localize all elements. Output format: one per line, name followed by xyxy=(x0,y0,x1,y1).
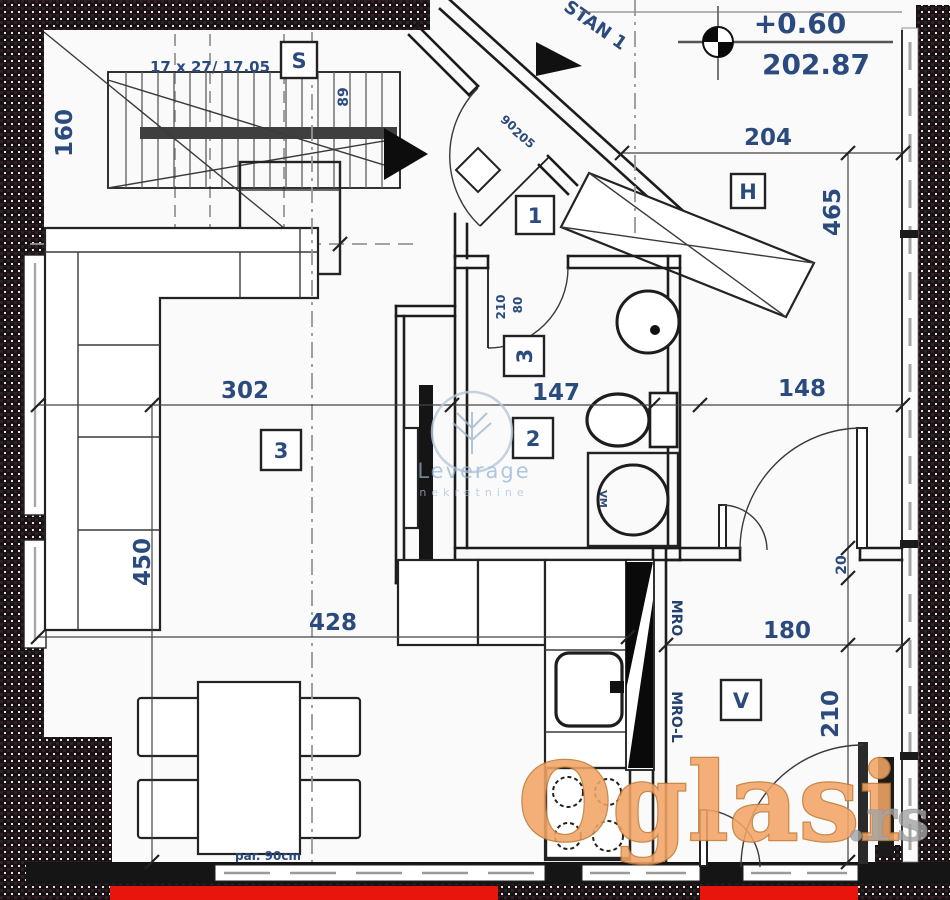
hall-door-leaf-large xyxy=(857,428,867,548)
left-wall-windows xyxy=(24,255,46,648)
agency-subtitle: nekretnine xyxy=(419,486,528,499)
dim-20: 20 xyxy=(834,555,850,575)
bathroom-fixtures: VM xyxy=(587,291,679,546)
kitchen-faucet xyxy=(610,681,624,693)
hall-door-arc-small xyxy=(722,505,767,550)
dim-180: 180 xyxy=(763,618,811,644)
kitchen-counter xyxy=(398,560,478,645)
chair xyxy=(138,780,206,838)
dining-set xyxy=(138,682,360,854)
dim-89: 89 xyxy=(336,87,352,106)
dim-148: 148 xyxy=(778,376,826,402)
dim-204: 204 xyxy=(744,125,792,151)
tag-bathroom: 2 xyxy=(526,427,541,451)
entry-vestibule: 90 205 STAN 1 xyxy=(409,0,814,317)
bath-door-height: 210 xyxy=(494,294,508,319)
dim-450: 450 xyxy=(130,538,156,586)
hall-door-arc-large xyxy=(740,428,862,550)
tag-entry: 1 xyxy=(528,204,543,228)
toilet-tank xyxy=(650,393,677,447)
entry-door-symbol xyxy=(456,148,500,192)
tree-icon xyxy=(453,412,491,454)
chair xyxy=(294,780,360,838)
agency-name: Leverage xyxy=(417,459,530,483)
duct-label-upper: MRO xyxy=(668,600,684,637)
floor-plan-drawing: 90 205 STAN 1 +0.60 202.87 210 80 xyxy=(0,0,950,900)
parapet-note: par. 90cm xyxy=(235,849,301,863)
chair xyxy=(138,698,206,756)
toilet-bowl xyxy=(587,394,649,446)
level-relative: +0.60 xyxy=(754,7,847,40)
dim-210: 210 xyxy=(818,690,844,738)
bottom-wall xyxy=(26,862,950,900)
kitchen-counter xyxy=(478,560,545,645)
tag-living: 3 xyxy=(274,439,289,463)
chair xyxy=(294,698,360,756)
dining-table xyxy=(198,682,300,854)
tag-room-v: V xyxy=(733,689,750,713)
apartment-name: STAN 1 xyxy=(560,0,631,55)
dim-428: 428 xyxy=(309,610,357,636)
apartment-arrow xyxy=(536,42,582,76)
bath-door-width: 80 xyxy=(511,297,525,314)
level-marker: +0.60 202.87 xyxy=(580,6,902,81)
duct-label-lower: MRO-L xyxy=(668,691,684,743)
tv-console xyxy=(404,428,418,528)
level-absolute: 202.87 xyxy=(762,48,870,81)
tv-partition xyxy=(396,306,455,583)
portal-name: Oglasi xyxy=(518,740,900,866)
tag-stairs: S xyxy=(291,49,306,73)
dim-302: 302 xyxy=(221,378,269,404)
stair-formula: 17 x 27/ 17.05 xyxy=(150,58,270,76)
stair-direction-arrow xyxy=(384,128,428,180)
red-window-marker-right xyxy=(700,886,858,900)
hall-door-leaf-small xyxy=(719,505,726,548)
red-window-marker-left xyxy=(110,886,498,900)
tag-hallway: H xyxy=(739,180,757,204)
dim-147: 147 xyxy=(532,380,580,406)
washbasin xyxy=(617,291,679,353)
tag-bath-upper: 3 xyxy=(513,349,537,364)
dim-160: 160 xyxy=(52,109,78,157)
floor-plan-screenshot: 90 205 STAN 1 +0.60 202.87 210 80 xyxy=(0,0,950,900)
washer-label: VM xyxy=(597,490,608,508)
portal-watermark: Oglasi .rs xyxy=(518,740,929,866)
portal-tld: .rs xyxy=(846,786,929,854)
dim-465: 465 xyxy=(820,188,846,236)
